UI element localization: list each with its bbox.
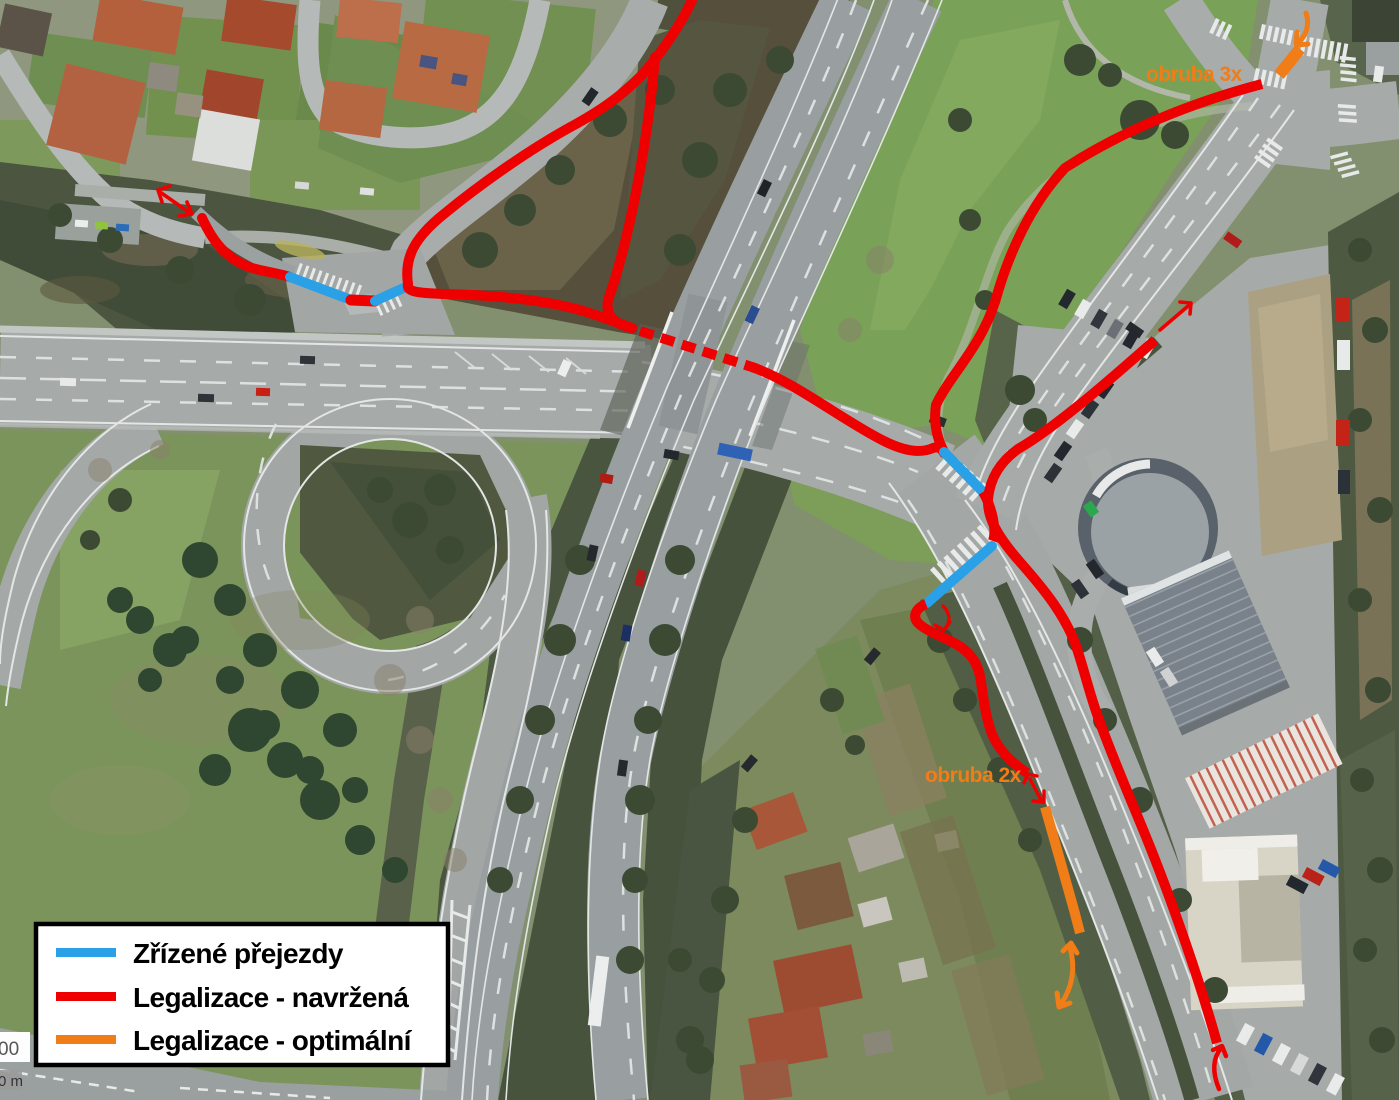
svg-text:Zřízené přejezdy: Zřízené přejezdy [133, 938, 344, 969]
svg-text:00: 00 [0, 1039, 19, 1060]
svg-text:0 m: 0 m [0, 1073, 23, 1090]
svg-text:obruba 3x: obruba 3x [1146, 63, 1243, 86]
svg-text:Legalizace - optimální: Legalizace - optimální [133, 1025, 413, 1056]
svg-text:Legalizace - navržená: Legalizace - navržená [133, 982, 409, 1013]
svg-text:obruba 2x: obruba 2x [925, 764, 1022, 787]
